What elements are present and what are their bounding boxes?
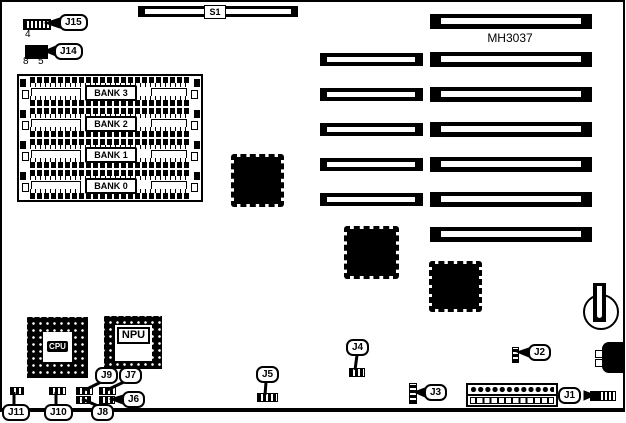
callout-j10: J10	[44, 404, 73, 421]
callout-j3: J3	[424, 384, 447, 401]
callout-j7: J7	[119, 367, 142, 384]
callout-j5: J5	[256, 366, 279, 383]
callout-j8: J8	[91, 404, 114, 421]
callout-j1: J1	[558, 387, 581, 404]
callout-j9: J9	[95, 367, 118, 384]
callout-j11: J11	[2, 404, 30, 421]
motherboard-diagram: S1 MH3037 BANK 3	[0, 0, 626, 423]
callout-j2: J2	[528, 344, 551, 361]
callout-j15: J15	[59, 14, 88, 31]
callout-j4: J4	[346, 339, 369, 356]
callout-j14: J14	[54, 43, 83, 60]
callout-j6: J6	[122, 391, 145, 408]
